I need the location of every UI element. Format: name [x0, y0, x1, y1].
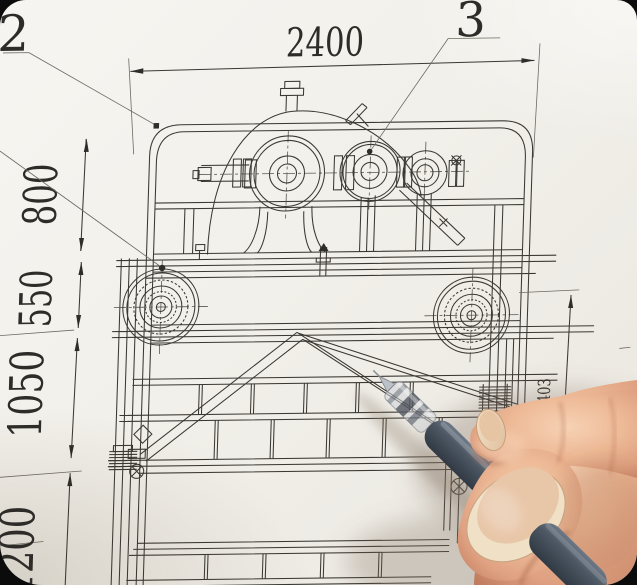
dimension-chain-left: 800 550 1050 1200 — [0, 139, 92, 585]
bearing-right — [423, 268, 520, 363]
callout-3-label: 3 — [455, 0, 487, 48]
dim-1050-label: 1050 — [0, 349, 55, 438]
gearbox — [183, 79, 472, 278]
blueprint-photo: 2400 800 550 1050 1200 1403 — [0, 0, 637, 585]
dim-top-label: 2400 — [285, 20, 364, 67]
callout-3: 3 — [367, 0, 502, 154]
dim-550-label: 550 — [10, 269, 63, 328]
input-shaft — [193, 159, 252, 188]
callout-2-label: 2 — [0, 5, 30, 63]
callout-2: 2 — [0, 3, 163, 131]
dim-1200-label: 1200 — [0, 505, 47, 585]
scene-canvas: 2400 800 550 1050 1200 1403 — [0, 0, 637, 585]
breather-plug — [345, 103, 369, 126]
